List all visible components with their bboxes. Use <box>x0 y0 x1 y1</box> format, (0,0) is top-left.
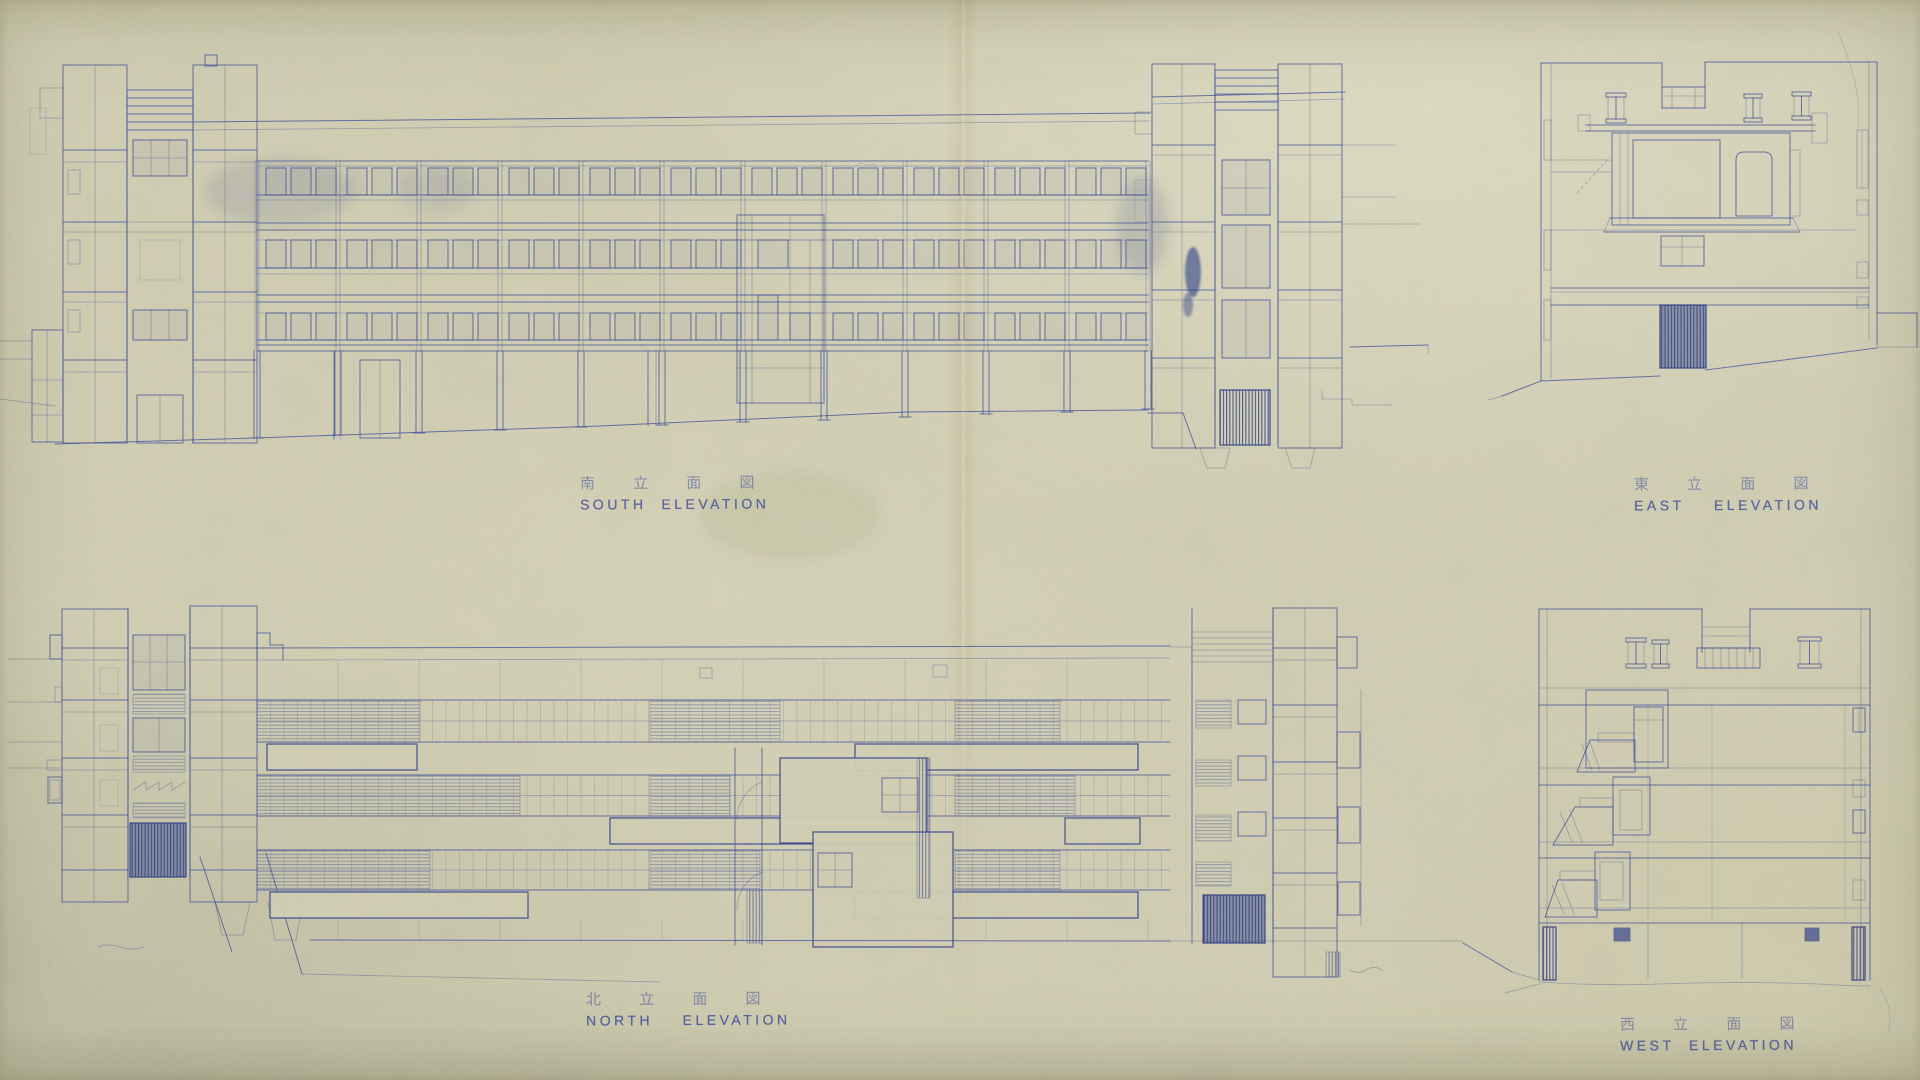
east-elevation-label-en: EAST ELEVATION <box>1634 496 1826 513</box>
west-elevation-label-en: WEST ELEVATION <box>1620 1036 1812 1053</box>
east-elevation-label-ja: 東 立 面 図 <box>1634 472 1826 494</box>
north-elevation-label-ja: 北 立 面 図 <box>586 987 791 1009</box>
west-elevation-label-ja: 西 立 面 図 <box>1620 1012 1812 1034</box>
south-elevation-label-ja: 南 立 面 図 <box>580 471 772 493</box>
south-elevation-label-en: SOUTH ELEVATION <box>580 495 772 512</box>
east-elevation-drawing <box>1488 32 1917 400</box>
north-elevation-label-en: NORTH ELEVATION <box>586 1011 791 1028</box>
blueprint-paper: 南 立 面 図 SOUTH ELEVATION 東 立 面 図 EAST ELE… <box>0 0 1920 1080</box>
elevation-drawings <box>0 0 1920 1080</box>
west-elevation-caption: 西 立 面 図 WEST ELEVATION <box>1620 1012 1812 1053</box>
south-elevation-drawing <box>0 55 1428 468</box>
south-elevation-caption: 南 立 面 図 SOUTH ELEVATION <box>580 471 772 512</box>
north-elevation-caption: 北 立 面 図 NORTH ELEVATION <box>586 987 791 1028</box>
north-elevation-drawing <box>8 606 1512 982</box>
east-elevation-caption: 東 立 面 図 EAST ELEVATION <box>1634 472 1826 513</box>
west-elevation-drawing <box>1505 609 1890 1034</box>
